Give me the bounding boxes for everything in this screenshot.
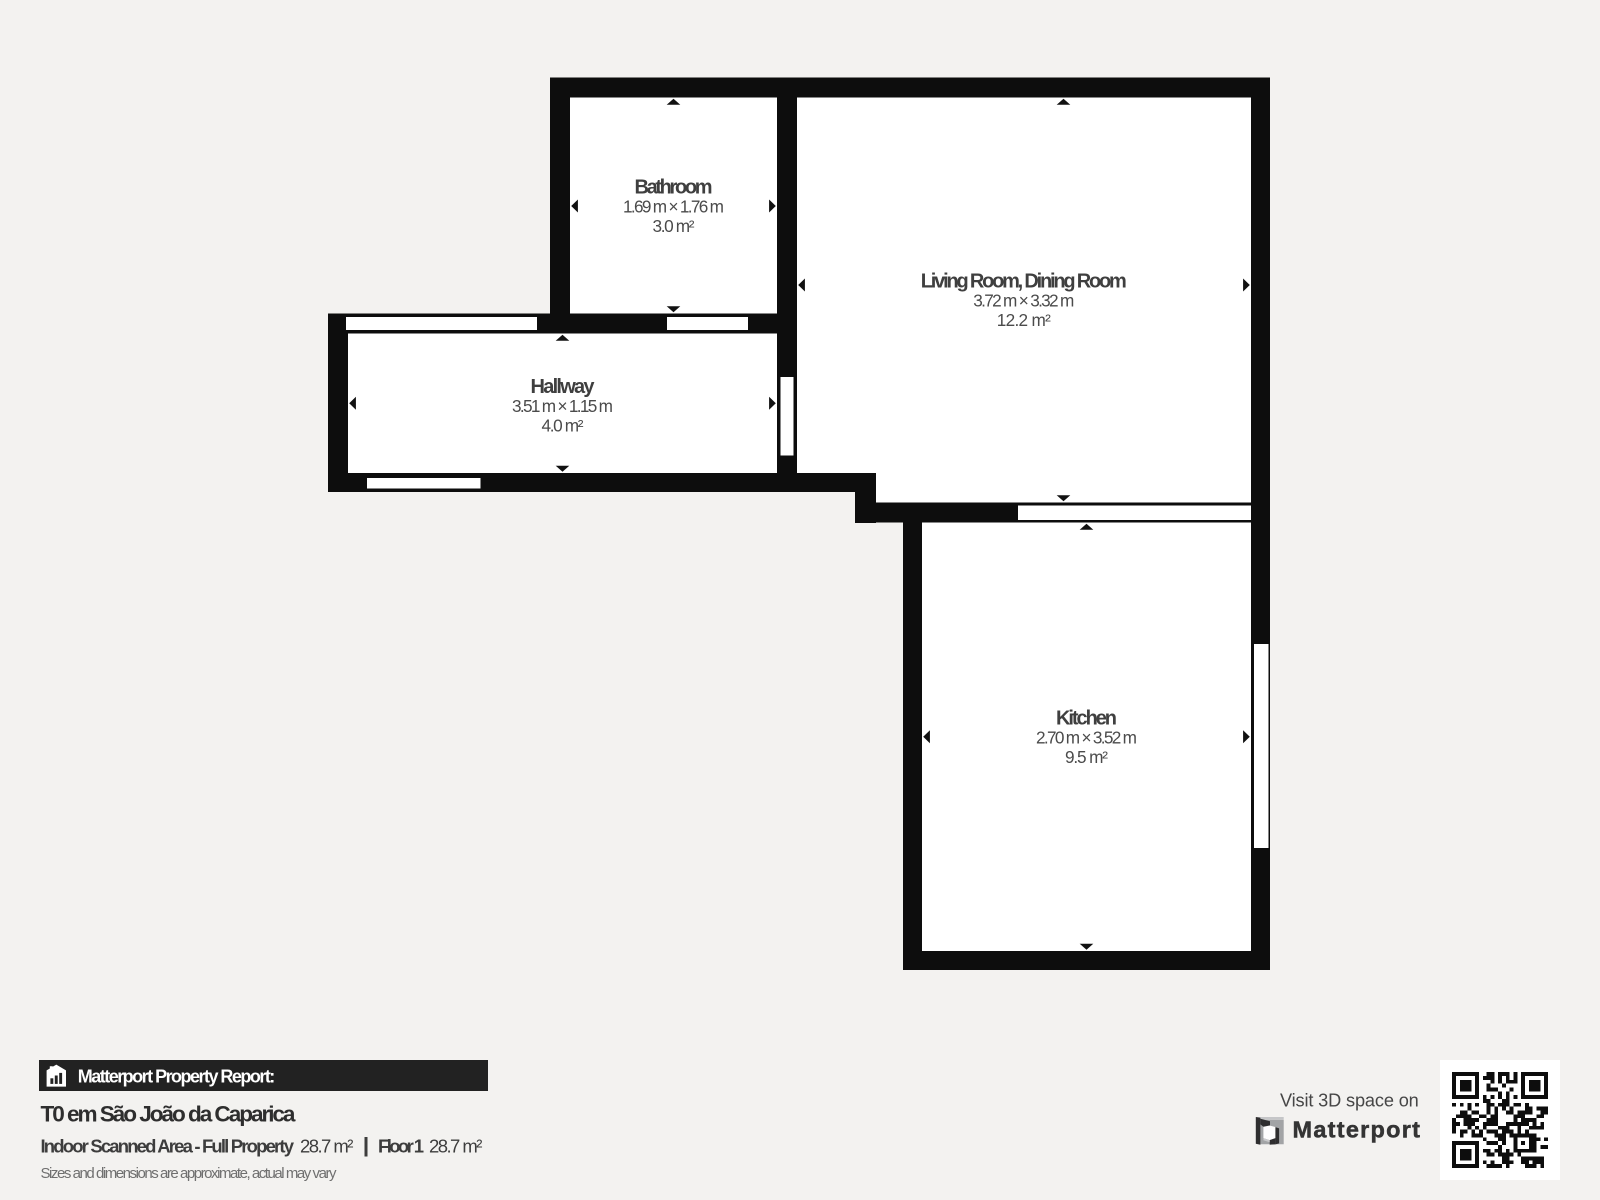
svg-text:Hallway: Hallway [531, 376, 596, 398]
svg-text:3.0 m²: 3.0 m² [653, 216, 695, 236]
svg-text:2.70 m × 3.52 m: 2.70 m × 3.52 m [1036, 727, 1137, 747]
svg-text:28.7 m²: 28.7 m² [300, 1136, 353, 1157]
svg-text:3.72 m × 3.32 m: 3.72 m × 3.32 m [973, 290, 1074, 310]
svg-text:Bathroom: Bathroom [635, 177, 713, 199]
svg-text:4.0 m²: 4.0 m² [542, 415, 584, 435]
svg-text:Matterport: Matterport [1293, 1117, 1421, 1143]
svg-text:T0 em São João da Caparica: T0 em São João da Caparica [41, 1102, 296, 1127]
svg-text:Living Room, Dining Room: Living Room, Dining Room [921, 271, 1127, 293]
svg-text:Sizes and dimensions are appro: Sizes and dimensions are approximate, ac… [41, 1165, 338, 1182]
svg-text:Visit 3D space on: Visit 3D space on [1280, 1090, 1419, 1110]
svg-text:Matterport Property Report:: Matterport Property Report: [78, 1067, 276, 1087]
svg-text:28.7 m²: 28.7 m² [429, 1136, 482, 1157]
svg-text:3.51 m × 1.15 m: 3.51 m × 1.15 m [512, 396, 613, 416]
svg-text:12.2 m²: 12.2 m² [997, 310, 1051, 330]
svg-text:1.69 m × 1.76 m: 1.69 m × 1.76 m [623, 196, 724, 216]
svg-text:9.5 m²: 9.5 m² [1065, 747, 1108, 767]
svg-text:Indoor Scanned Area - Full Pro: Indoor Scanned Area - Full Property [41, 1136, 295, 1157]
svg-text:Floor 1: Floor 1 [378, 1136, 424, 1157]
svg-text:Kitchen: Kitchen [1056, 708, 1117, 730]
